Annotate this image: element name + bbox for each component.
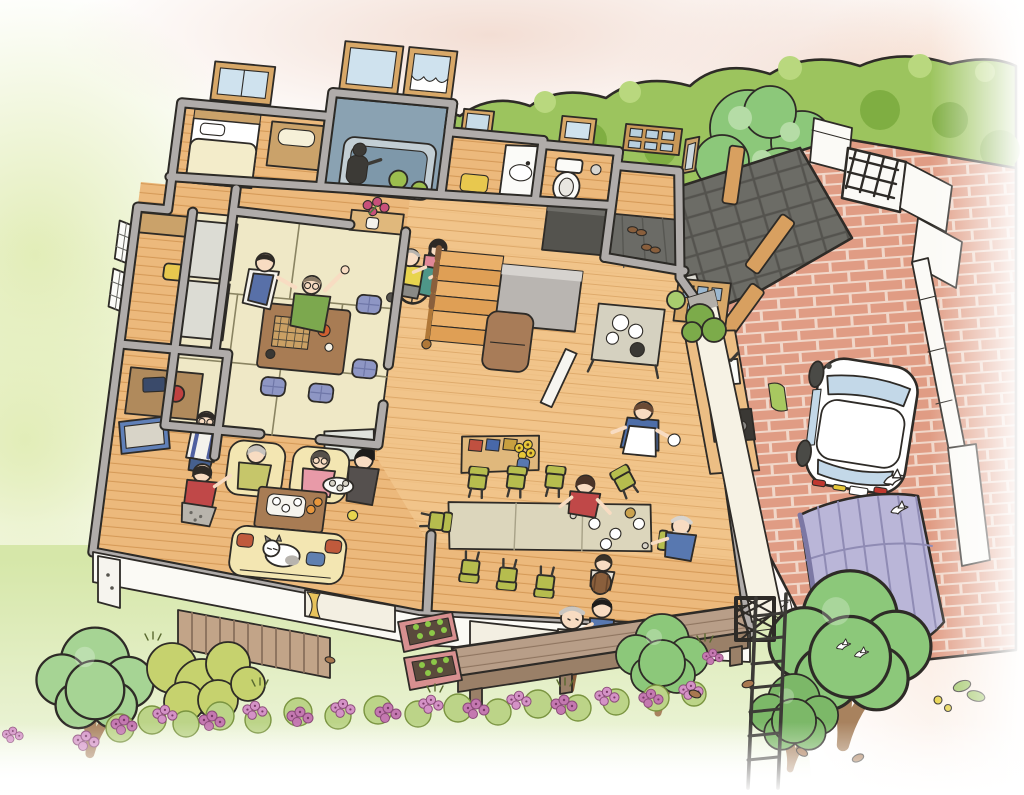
sofa-cushion-red xyxy=(236,533,254,547)
skylight-window xyxy=(210,61,275,105)
floor-cushion xyxy=(260,376,286,396)
tail-light-red xyxy=(812,479,826,487)
concrete-post xyxy=(98,556,120,608)
sofa-cushion-blue xyxy=(306,552,326,567)
brown-armchair xyxy=(481,310,535,372)
coffee-table xyxy=(254,487,327,533)
floor-cushion xyxy=(308,383,334,403)
toilet-window xyxy=(559,116,596,145)
front-door xyxy=(623,124,682,155)
laptop xyxy=(143,377,165,392)
floor-cushion xyxy=(351,359,377,379)
bath-mat xyxy=(460,173,489,193)
sofa-cushion-red-2 xyxy=(325,539,343,553)
house-cutaway-illustration xyxy=(0,0,1024,795)
car-roof xyxy=(814,398,906,470)
floor-cushion xyxy=(356,294,382,314)
toilet-tank xyxy=(555,158,583,173)
illustration-root xyxy=(0,0,1024,795)
bed-pillow xyxy=(200,123,225,136)
folded-futon xyxy=(277,128,315,147)
